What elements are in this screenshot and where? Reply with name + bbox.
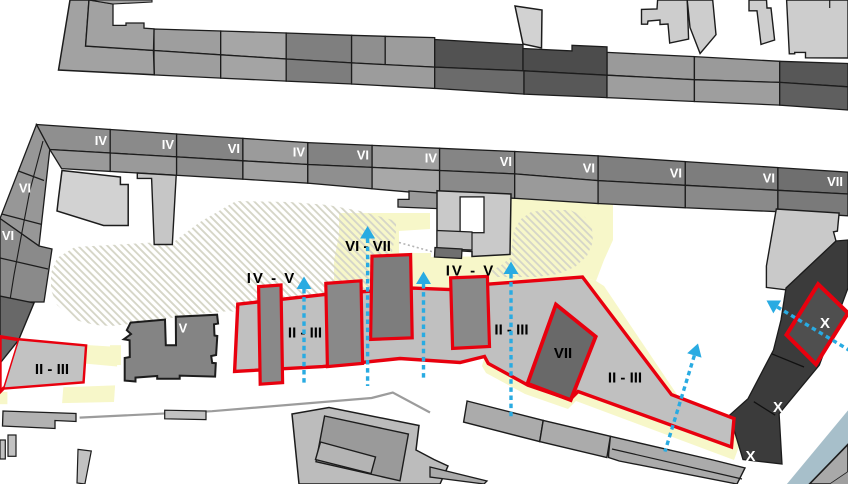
svg-text:X: X xyxy=(773,399,783,416)
svg-text:X: X xyxy=(820,315,830,332)
svg-text:VI: VI xyxy=(583,161,595,176)
svg-text:IV: IV xyxy=(425,151,438,166)
svg-text:II - III: II - III xyxy=(35,361,69,378)
svg-text:VI: VI xyxy=(19,181,31,196)
svg-text:IV: IV xyxy=(162,137,175,152)
svg-text:VI: VI xyxy=(357,147,369,162)
svg-text:IV - V: IV - V xyxy=(446,263,496,280)
svg-text:VI: VI xyxy=(2,228,14,243)
svg-text:VI: VI xyxy=(670,165,682,180)
svg-text:II - III: II - III xyxy=(608,370,642,387)
svg-text:X: X xyxy=(745,448,755,465)
svg-text:IV: IV xyxy=(95,133,108,148)
svg-text:VI: VI xyxy=(228,141,240,156)
svg-text:VI: VI xyxy=(763,170,775,185)
svg-text:VII: VII xyxy=(827,174,843,189)
svg-text:VII: VII xyxy=(554,345,572,362)
svg-text:V: V xyxy=(179,321,188,336)
svg-text:IV - V: IV - V xyxy=(247,270,297,287)
svg-text:VI: VI xyxy=(500,154,512,169)
svg-text:IV: IV xyxy=(293,145,306,160)
